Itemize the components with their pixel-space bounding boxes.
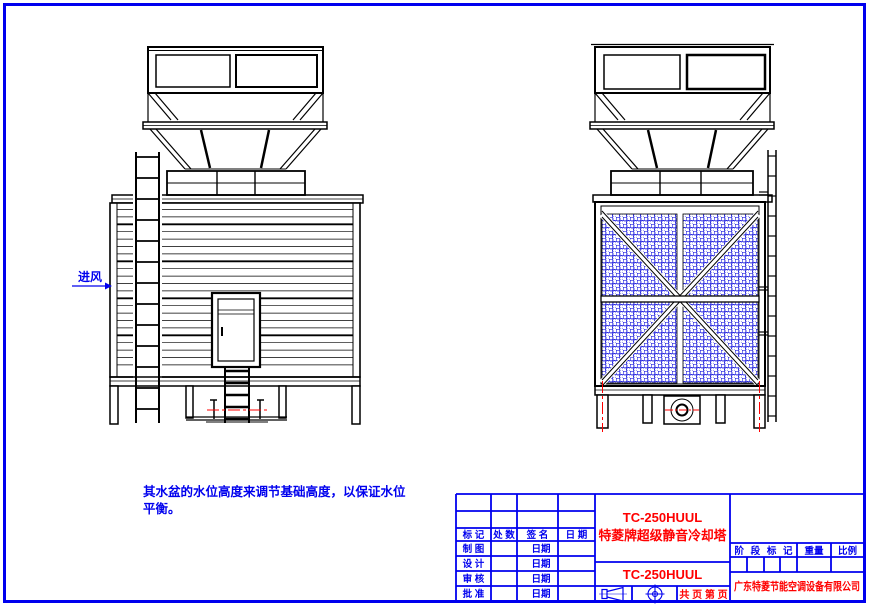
stage-mark-label: 阶段标记 <box>735 545 793 557</box>
scale-label: 比例 <box>838 545 857 557</box>
side-access-ladder <box>133 152 162 423</box>
front-deck-grid <box>611 171 753 195</box>
revision-table: 标 记 处 数 签 名 日 期 制 图 日期 设 计 日期 审 核 日期 批 准… <box>462 529 588 600</box>
front-fan-cowl <box>597 129 768 169</box>
title-block: 标 记 处 数 签 名 日 期 制 图 日期 设 计 日期 审 核 日期 批 准… <box>456 494 864 604</box>
note-line-1: 其水盆的水位高度来调节基础高度，以保证水位 <box>143 484 406 499</box>
row-check-date: 日期 <box>531 573 550 585</box>
side-cowl-flange <box>143 122 327 129</box>
side-fan-cowl <box>150 129 321 169</box>
weight-label: 重量 <box>804 545 824 557</box>
product-name: 特菱牌超级静音冷却塔 <box>599 528 728 543</box>
row-design-label: 设 计 <box>463 558 485 570</box>
rev-header-signature: 签 名 <box>526 529 549 541</box>
rev-header-date: 日 期 <box>566 529 588 541</box>
cad-drawing-canvas: 进风 其水盆的水位高度来调节基础高度，以保证水位 平衡。 <box>0 0 871 611</box>
front-deck-band <box>593 195 772 202</box>
front-mid-beam <box>601 296 759 302</box>
row-drawn-label: 制 图 <box>463 543 485 555</box>
side-fan-cowl-top-box <box>148 47 323 93</box>
air-inlet-label: 进风 <box>78 269 102 284</box>
projection-symbol-icon <box>599 588 627 602</box>
side-view <box>110 47 363 424</box>
front-cowl-flange <box>590 122 774 129</box>
cad-sheet: 进风 其水盆的水位高度来调节基础高度，以保证水位 平衡。 <box>0 0 871 611</box>
front-base <box>595 381 765 432</box>
rev-header-mark: 标 记 <box>462 529 485 541</box>
side-cowl-transition <box>148 93 323 122</box>
front-view <box>590 45 776 433</box>
front-body <box>595 202 765 386</box>
rev-header-count: 处 数 <box>492 529 515 541</box>
model-number-cell: TC-250HUUL <box>623 567 703 582</box>
side-access-door <box>212 293 260 367</box>
company-name: 广东特菱节能空调设备有限公司 <box>734 579 860 593</box>
note-line-2: 平衡。 <box>143 501 181 516</box>
pages-label: 共 页 第 页 <box>679 588 727 601</box>
front-cowl-transition <box>595 93 770 122</box>
row-design-date: 日期 <box>531 558 550 570</box>
front-fan-cowl-top-box <box>591 45 774 94</box>
row-approve-label: 批 准 <box>463 588 485 600</box>
row-drawn-date: 日期 <box>531 543 550 555</box>
product-model-title: TC-250HUUL <box>623 510 703 525</box>
side-deck-grid <box>167 171 305 195</box>
row-check-label: 审 核 <box>463 573 485 585</box>
row-approve-date: 日期 <box>531 588 550 600</box>
